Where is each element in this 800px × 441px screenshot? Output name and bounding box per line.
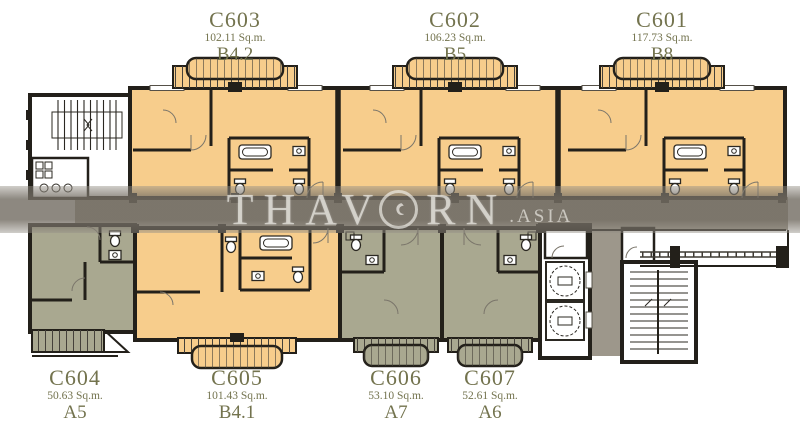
unit-label-C603: C603 102.11 Sq.m. B4.2 <box>205 8 266 65</box>
elevator-icon <box>546 302 584 340</box>
unit-type: B5 <box>424 45 485 65</box>
watermark-text: THAVRN <box>227 188 508 232</box>
unit-type: B4.2 <box>205 45 266 65</box>
watermark-band: THAVRN .ASIA <box>0 186 800 233</box>
unit-label-C601: C601 117.73 Sq.m. B8 <box>632 8 693 65</box>
unit-id: C604 <box>47 366 103 389</box>
unit-area: 102.11 Sq.m. <box>205 32 266 44</box>
unit-id: C607 <box>462 366 518 389</box>
unit-label-C605: C605 101.43 Sq.m. B4.1 <box>206 366 267 423</box>
thavorn-logo-icon <box>379 190 418 229</box>
unit-id: C603 <box>205 8 266 31</box>
unit-id: C602 <box>424 8 485 31</box>
unit-area: 50.63 Sq.m. <box>47 390 103 402</box>
floor-plan-stage: THAVRN .ASIA C603 102.11 Sq.m. B4.2 C602… <box>0 0 800 441</box>
unit-area: 117.73 Sq.m. <box>632 32 693 44</box>
watermark-part2: RN <box>426 188 507 232</box>
unit-type: A6 <box>462 403 518 423</box>
unit-label-C604: C604 50.63 Sq.m. A5 <box>47 366 103 423</box>
watermark-part1: THAV <box>227 188 384 232</box>
unit-type: A7 <box>368 403 424 423</box>
unit-id: C605 <box>206 366 267 389</box>
right-stairwell <box>622 228 696 362</box>
unit-type: B4.1 <box>206 403 267 423</box>
elevator-icon <box>546 262 584 300</box>
unit-area: 53.10 Sq.m. <box>368 390 424 402</box>
unit-label-C606: C606 53.10 Sq.m. A7 <box>368 366 424 423</box>
watermark-suffix: .ASIA <box>509 206 573 228</box>
unit-type: A5 <box>47 403 103 423</box>
unit-id: C606 <box>368 366 424 389</box>
unit-area: 101.43 Sq.m. <box>206 390 267 402</box>
left-stairwell <box>26 95 130 198</box>
elevator-core <box>540 225 592 358</box>
unit-label-C602: C602 106.23 Sq.m. B5 <box>424 8 485 65</box>
unit-label-C607: C607 52.61 Sq.m. A6 <box>462 366 518 423</box>
unit-id: C601 <box>632 8 693 31</box>
unit-type: B8 <box>632 45 693 65</box>
unit-area: 52.61 Sq.m. <box>462 390 518 402</box>
unit-area: 106.23 Sq.m. <box>424 32 485 44</box>
